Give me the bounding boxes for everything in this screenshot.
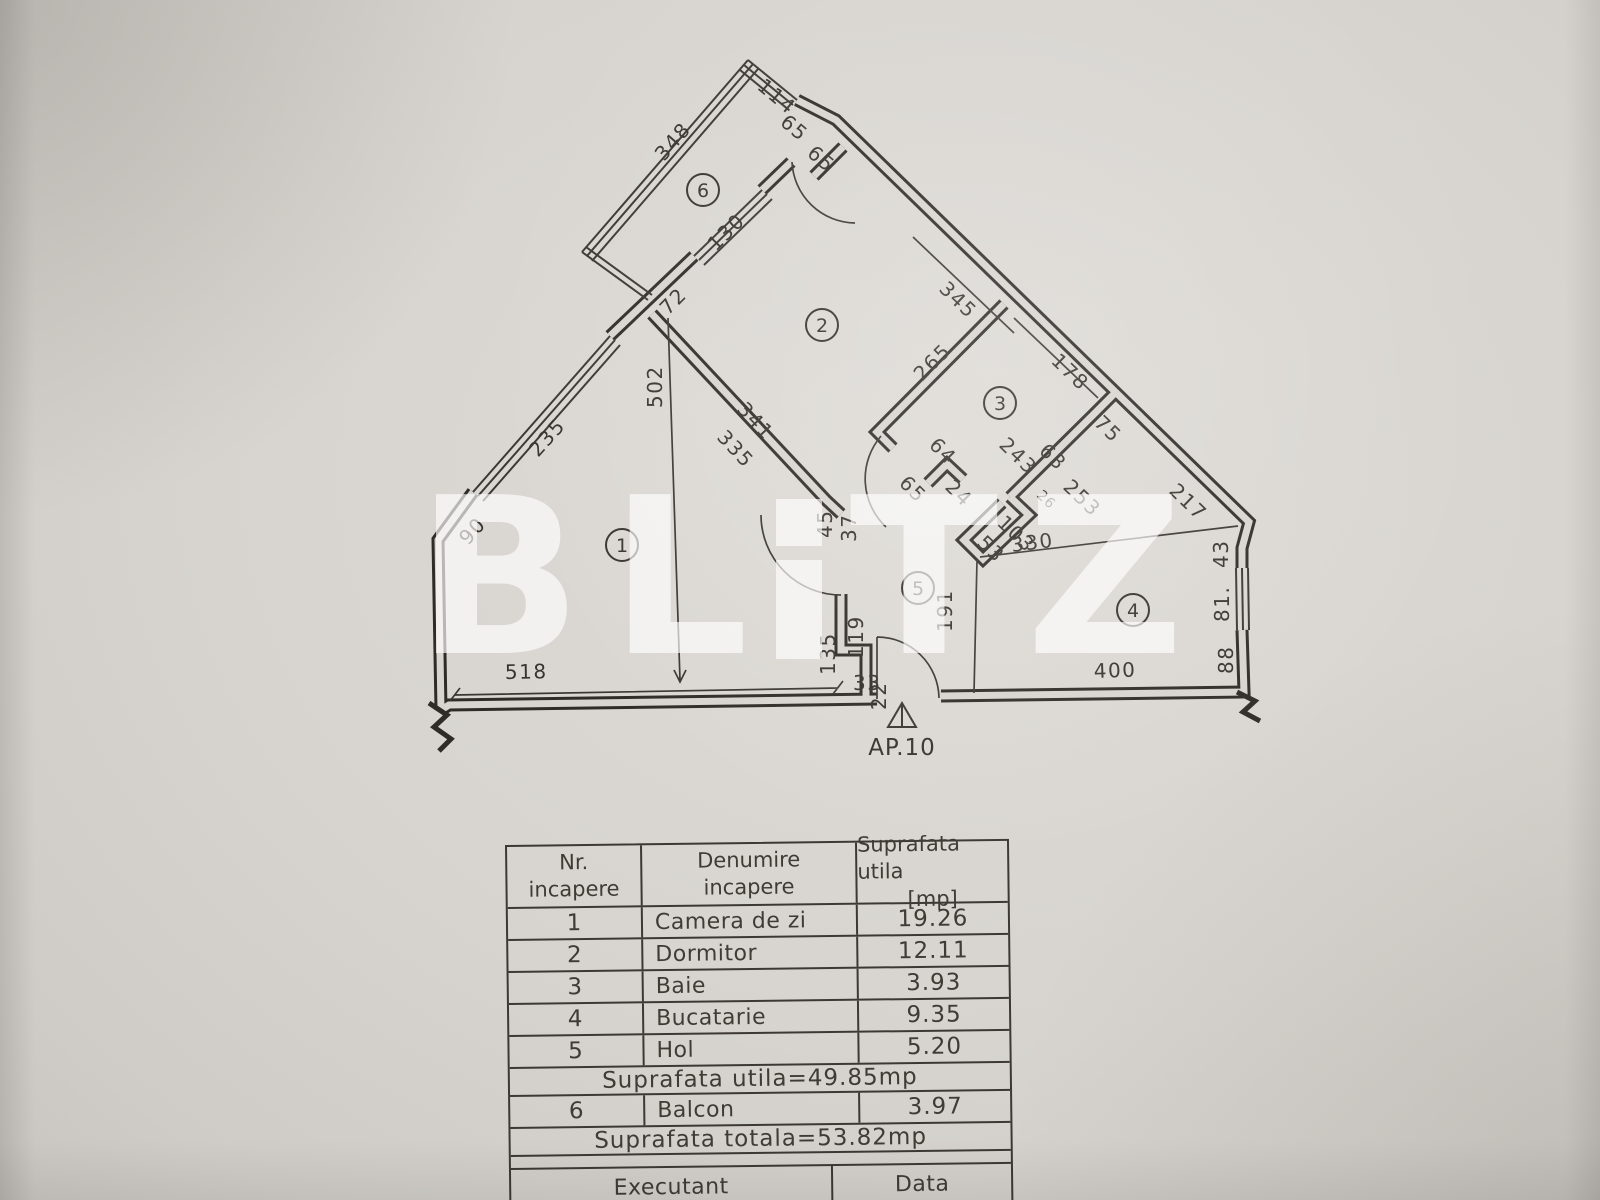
dim-label-65b: 65 [803, 140, 840, 177]
dim-label-45: 45 [813, 510, 837, 538]
row-area: 12.11 [858, 935, 1008, 967]
row-name: Hol [644, 1033, 859, 1066]
row-name: Balcon [645, 1093, 860, 1126]
dim-label-502: 502 [643, 365, 667, 408]
dim-label-43: 43 [1209, 540, 1233, 568]
room-number-6: 6 [697, 180, 709, 202]
dim-label-191: 191 [933, 589, 957, 632]
room-number-4: 4 [1127, 600, 1139, 622]
room-number-2: 2 [816, 315, 828, 337]
dim-label-22: 22 [867, 682, 891, 710]
entrance-triangle-icon [888, 703, 916, 727]
header-suprafata-utila: Suprafata utila[mp] [857, 841, 1008, 903]
table-row: 4 Bucatarie 9.35 [509, 997, 1009, 1035]
row-area: 3.97 [860, 1091, 1010, 1123]
row-area: 3.93 [859, 967, 1009, 999]
row-nr: 6 [510, 1095, 645, 1127]
table-header-row: Nr.incapere Denumireincapere Suprafata u… [507, 841, 1008, 907]
row-area: 5.20 [859, 1031, 1009, 1063]
table-row: 1 Camera de zi 19.26 [508, 901, 1008, 939]
dim-label-348: 348 [650, 117, 696, 165]
dim-line-502 [668, 318, 686, 682]
dim-label-400: 400 [1093, 658, 1136, 683]
balcony-edge [582, 247, 652, 300]
dim-label-81: 81. [1210, 586, 1234, 622]
dim-label-24: 24 [940, 475, 977, 512]
dim-label-253: 253 [1059, 474, 1106, 521]
dim-label-518: 518 [505, 659, 548, 684]
row-area: 9.35 [859, 999, 1009, 1031]
header-denumire-incapere: Denumireincapere [642, 843, 858, 906]
wall-break-bottom-right [1237, 692, 1260, 721]
room-number-1: 1 [616, 535, 628, 557]
executant-row: Executant Data [511, 1162, 1011, 1200]
row-nr: 5 [509, 1035, 644, 1067]
dim-label-88: 88 [1214, 646, 1238, 674]
table-row: 2 Dormitor 12.11 [508, 933, 1008, 971]
table-row: 3 Baie 3.93 [509, 965, 1009, 1003]
row-nr: 2 [508, 939, 643, 971]
scanned-floor-plan-page: AP.10 1 2 3 4 5 6 348 114 65 65 130 72 5… [0, 0, 1600, 1200]
dim-label-135: 135 [816, 632, 840, 675]
row-name: Dormitor [643, 937, 858, 970]
dim-label-37: 37 [837, 514, 861, 542]
dim-label-265: 265 [909, 338, 956, 385]
bathroom-door-arc [865, 436, 886, 527]
table-row: 5 Hol 5.20 [509, 1029, 1009, 1067]
room-area-table: Nr.incapere Denumireincapere Suprafata u… [505, 839, 1014, 1200]
executant-label: Executant [511, 1166, 833, 1200]
row-area: 19.26 [858, 903, 1008, 935]
balcony-row: 6 Balcon 3.97 [510, 1089, 1010, 1127]
room-number-3: 3 [994, 393, 1006, 415]
window-235 [473, 336, 620, 501]
dim-label-235: 235 [524, 414, 570, 462]
partition-line-191 [974, 560, 977, 693]
dim-label-119: 119 [844, 615, 868, 658]
dim-label-330: 330 [1010, 528, 1055, 557]
header-nr-incapere: Nr.incapere [507, 845, 643, 907]
row-nr: 4 [509, 1003, 644, 1035]
dim-label-26: 26 [1033, 487, 1058, 512]
row-name: Bucatarie [644, 1001, 859, 1034]
room-number-5: 5 [912, 578, 924, 600]
row-name: Baie [644, 969, 859, 1002]
dim-label-345: 345 [935, 276, 982, 323]
window-81 [1236, 568, 1249, 630]
row-nr: 3 [509, 971, 644, 1003]
row-nr: 1 [508, 907, 643, 939]
apartment-label: AP.10 [868, 735, 936, 761]
data-label: Data [833, 1164, 1011, 1200]
entrance-marker: AP.10 [868, 703, 936, 761]
room-numbers: 1 2 3 4 5 6 [606, 174, 1149, 626]
row-name: Camera de zi [643, 905, 858, 938]
